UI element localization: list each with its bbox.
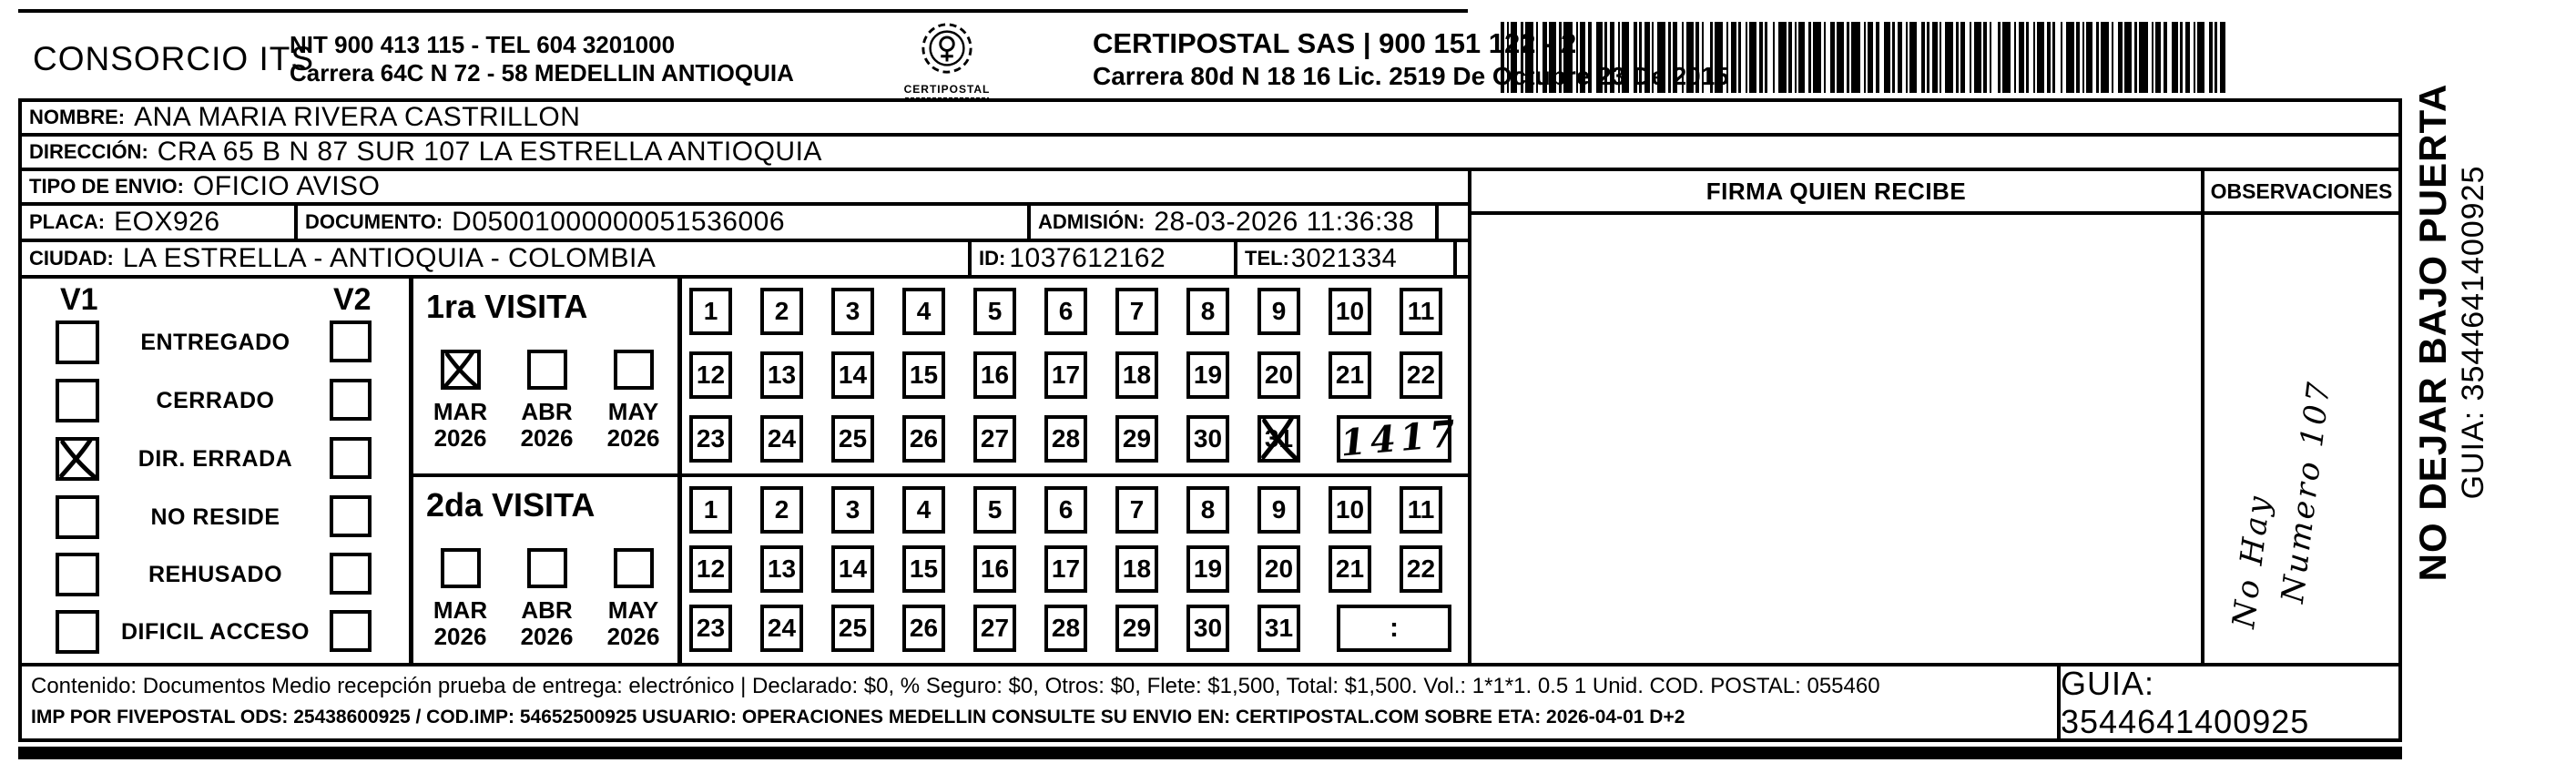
tel-value: 3021334 — [1291, 244, 1397, 274]
month-checkbox — [527, 350, 567, 390]
barcode-bar — [1682, 22, 1684, 93]
day-box: 14 — [831, 351, 874, 399]
barcode-bar — [1970, 22, 1971, 93]
barcode-bar — [1824, 22, 1826, 93]
status-checkbox-v1 — [56, 553, 99, 596]
barcode-bar — [2047, 22, 2051, 93]
month-year: 2026 — [417, 624, 504, 650]
barcode-bar — [1847, 22, 1849, 93]
barcode-bar — [2155, 22, 2161, 93]
status-row: NO RESIDE — [22, 495, 409, 539]
side-note: NO DEJAR BAJO PUERTA GUIA: 3544641400925 — [2411, 68, 2499, 596]
handwritten-x-mark — [1256, 413, 1302, 464]
month-label: MAY — [590, 597, 677, 624]
month-year: 2026 — [504, 624, 590, 650]
month-label: MAY — [590, 399, 677, 425]
side-note-warning: NO DEJAR BAJO PUERTA — [2411, 68, 2455, 596]
bottom-scan-bar — [18, 747, 2402, 759]
barcode-bar — [2026, 22, 2029, 93]
day-box: 19 — [1186, 545, 1229, 593]
month-checkbox — [441, 548, 481, 588]
id-cell: ID: 1037612162 — [968, 239, 1237, 279]
guia-number: GUIA: 3544641400925 — [2061, 665, 2398, 741]
barcode-bar — [1668, 22, 1671, 93]
day-box: 25 — [831, 415, 874, 463]
barcode-bar — [2082, 22, 2084, 93]
barcode-bar — [2019, 22, 2024, 93]
observaciones-header: OBSERVACIONES — [2204, 171, 2398, 215]
barcode-bar — [1927, 22, 1929, 93]
visit2-column-header: V2 — [333, 282, 372, 318]
status-row: REHUSADO — [22, 553, 409, 596]
status-checkbox-v2 — [330, 610, 372, 652]
admision-value: 28-03-2026 11:36:38 — [1154, 207, 1414, 238]
time-value: : — [1390, 613, 1399, 643]
barcode-bar — [1673, 22, 1677, 93]
month-label: MAR — [417, 399, 504, 425]
day-box: 8 — [1186, 288, 1229, 335]
day-box: 9 — [1257, 288, 1300, 335]
month-year: 2026 — [417, 425, 504, 452]
barcode-bar — [2185, 22, 2190, 93]
barcode-bar — [1960, 22, 1965, 93]
day-box: 9 — [1257, 486, 1300, 534]
barcode-bar — [1990, 22, 1991, 93]
day-row: 1213141516171819202122 — [689, 545, 1471, 593]
day-box: 27 — [973, 415, 1016, 463]
day-box: 22 — [1400, 351, 1442, 399]
barcode-bar — [1798, 22, 1805, 93]
day-box: 2 — [760, 288, 803, 335]
status-checkbox-v1 — [56, 610, 99, 654]
admision-cell: ADMISIÓN: 28-03-2026 11:36:38 — [1027, 202, 1439, 242]
status-label: DIR. ERRADA — [108, 437, 322, 481]
day-box: 14 — [831, 545, 874, 593]
status-row: ENTREGADO — [22, 320, 409, 364]
barcode-bar — [1864, 22, 1866, 93]
visit1-column-header: V1 — [60, 282, 98, 318]
barcode-bar — [1788, 22, 1792, 93]
barcode-bar — [2066, 22, 2074, 93]
company-address: Carrera 64C N 72 - 58 MEDELLIN ANTIOQUIA — [290, 59, 794, 87]
status-checkbox-v2 — [330, 379, 372, 421]
visita2-months: MAR2026ABR2026MAY2026 — [417, 548, 677, 650]
footer-content-line: Contenido: Documentos Medio recepción pr… — [31, 674, 1880, 699]
barcode-bar — [1921, 22, 1925, 93]
barcode-bar — [1884, 22, 1890, 93]
nombre-label: NOMBRE: — [22, 106, 125, 129]
barcode-bar — [1644, 22, 1650, 93]
day-box: 27 — [973, 605, 1016, 652]
barcode-bar — [1808, 22, 1811, 93]
tipo-envio-row: TIPO DE ENVIO: OFICIO AVISO — [18, 168, 1471, 206]
day-box: 10 — [1329, 486, 1371, 534]
barcode-bar — [1695, 22, 1699, 93]
company-nit: NIT 900 413 115 - TEL 604 3201000 — [290, 31, 794, 59]
nombre-value: ANA MARIA RIVERA CASTRILLON — [134, 102, 580, 133]
day-box: 5 — [973, 288, 1016, 335]
documento-value: D05001000000051536006 — [452, 207, 785, 238]
barcode-bar — [2209, 22, 2213, 93]
month-cell: MAY2026 — [590, 350, 677, 452]
barcode-bar — [1596, 22, 1603, 93]
barcode-bar — [1501, 22, 1504, 93]
day-box: 23 — [689, 415, 732, 463]
barcode-bar — [1622, 22, 1629, 93]
visita1-day-grid: 1234567891011121314151617181920212223242… — [678, 275, 1471, 477]
side-note-guia: GUIA: 3544641400925 — [2455, 68, 2491, 596]
status-label: CERRADO — [108, 379, 322, 422]
visita1-month-panel: 1ra VISITA MAR2026ABR2026MAY2026 — [410, 275, 681, 477]
direccion-value: CRA 65 B N 87 SUR 107 LA ESTRELLA ANTIOQ… — [158, 137, 822, 168]
barcode-bar — [1932, 22, 1938, 93]
barcode-bar — [1983, 22, 1987, 93]
barcode-bar — [1618, 22, 1620, 93]
month-year: 2026 — [590, 425, 677, 452]
ciudad-cell: CIUDAD: LA ESTRELLA - ANTIOQUIA - COLOMB… — [18, 239, 972, 279]
documento-cell: DOCUMENTO: D05001000000051536006 — [294, 202, 1031, 242]
visita1-title: 1ra VISITA — [426, 288, 587, 326]
barcode-bar — [2037, 22, 2044, 93]
day-box: 30 — [1186, 415, 1229, 463]
barcode-bar — [2215, 22, 2217, 93]
barcode-bar — [2194, 22, 2195, 93]
placa-cell: PLACA: EOX926 — [18, 202, 298, 242]
admision-label: ADMISIÓN: — [1031, 210, 1145, 234]
day-box: 16 — [973, 351, 1016, 399]
day-box: 6 — [1044, 486, 1087, 534]
barcode-bar — [1940, 22, 1941, 93]
status-checkbox-v1 — [56, 320, 99, 364]
status-label: NO RESIDE — [108, 495, 322, 539]
status-checkbox-v1 — [56, 379, 99, 422]
day-box: 11 — [1400, 486, 1442, 534]
status-label: DIFICIL ACCESO — [108, 610, 322, 654]
barcode-bar — [2197, 22, 2204, 93]
barcode-bar — [1521, 22, 1523, 93]
barcode-bar — [1974, 22, 1981, 93]
barcode-bar — [1536, 22, 1538, 93]
barcode-bar — [2076, 22, 2080, 93]
barcode-bar — [1898, 22, 1902, 93]
barcode-bar — [1686, 22, 1694, 93]
barcode-bar — [1580, 22, 1585, 93]
day-box: 11 — [1400, 288, 1442, 335]
barcode-bar — [2164, 22, 2167, 93]
month-checkbox — [614, 548, 654, 588]
day-row: 1213141516171819202122 — [689, 351, 1471, 399]
day-box: 8 — [1186, 486, 1229, 534]
tel-cell: TEL: 3021334 — [1234, 239, 1457, 279]
day-box: 24 — [760, 415, 803, 463]
barcode-bar — [1576, 22, 1578, 93]
day-box: 3 — [831, 288, 874, 335]
month-cell: MAR2026 — [417, 350, 504, 452]
day-box: 30 — [1186, 605, 1229, 652]
direccion-label: DIRECCIÓN: — [22, 140, 148, 164]
barcode-bar — [1634, 22, 1637, 93]
barcode-bar — [2002, 22, 2011, 93]
handwritten-x-mark — [439, 348, 483, 392]
day-box: 7 — [1115, 288, 1158, 335]
day-box: 18 — [1115, 545, 1158, 593]
day-row: 1234567891011 — [689, 486, 1471, 534]
barcode-bar — [1778, 22, 1787, 93]
barcode-bar — [1657, 22, 1665, 93]
status-checkbox-v1 — [56, 437, 99, 481]
barcode-bar — [1604, 22, 1607, 93]
day-box: 21 — [1329, 545, 1371, 593]
barcode-bar — [1749, 22, 1756, 93]
barcode-bar — [1759, 22, 1763, 93]
barcode-bar — [1830, 22, 1835, 93]
barcode-bar — [1543, 22, 1547, 93]
day-box: 20 — [1257, 545, 1300, 593]
barcode-bar — [1710, 22, 1713, 93]
month-cell: ABR2026 — [504, 350, 590, 452]
month-cell: ABR2026 — [504, 548, 590, 650]
placa-value: EOX926 — [114, 207, 219, 238]
month-year: 2026 — [504, 425, 590, 452]
barcode-bar — [2152, 22, 2153, 93]
barcode-bar — [2101, 22, 2109, 93]
barcode-bar — [2112, 22, 2113, 93]
barcode-bar — [1610, 22, 1614, 93]
tipo-envio-value: OFICIO AVISO — [193, 171, 380, 202]
month-cell: MAR2026 — [417, 548, 504, 650]
month-label: ABR — [504, 399, 590, 425]
day-box: 17 — [1044, 545, 1087, 593]
barcode-bar — [1795, 22, 1797, 93]
day-box: 15 — [902, 351, 945, 399]
barcode-bar — [1909, 22, 1917, 93]
day-box: 13 — [760, 545, 803, 593]
ciudad-label: CIUDAD: — [22, 247, 114, 270]
status-checkbox-v2 — [330, 495, 372, 537]
month-checkbox — [527, 548, 567, 588]
day-box: 28 — [1044, 605, 1087, 652]
barcode-bar — [2220, 22, 2225, 93]
barcode-bar — [1998, 22, 2001, 93]
status-label: ENTREGADO — [108, 320, 322, 364]
handwritten-x-mark — [54, 435, 101, 483]
barcode-bar — [2086, 22, 2092, 93]
day-box: 13 — [760, 351, 803, 399]
barcode-bar — [1746, 22, 1747, 93]
scanned-delivery-form: CONSORCIO ITS NIT 900 413 115 - TEL 604 … — [0, 0, 2576, 763]
barcode-bar — [2139, 22, 2148, 93]
day-box: 22 — [1400, 545, 1442, 593]
certipostal-logo-icon — [908, 22, 986, 76]
footer-imp-line: IMP POR FIVEPOSTAL ODS: 25438600925 / CO… — [31, 707, 1685, 728]
month-label: ABR — [504, 597, 590, 624]
id-value: 1037612162 — [1009, 243, 1166, 274]
day-row: 232425262728293031: — [689, 605, 1451, 652]
tel-label: TEL: — [1237, 247, 1289, 270]
day-box: 1 — [689, 288, 732, 335]
month-label: MAR — [417, 597, 504, 624]
barcode-bar — [1702, 22, 1704, 93]
day-box: 25 — [831, 605, 874, 652]
visita2-month-panel: 2da VISITA MAR2026ABR2026MAY2026 — [410, 473, 681, 666]
month-year: 2026 — [590, 624, 677, 650]
month-checkbox — [441, 350, 481, 390]
barcode-bar — [1507, 22, 1509, 93]
barcode-bar — [1639, 22, 1642, 93]
barcode — [1501, 22, 2235, 93]
barcode-bar — [2096, 22, 2099, 93]
company-name: CONSORCIO ITS — [33, 40, 314, 78]
day-box: 26 — [902, 605, 945, 652]
barcode-bar — [2180, 22, 2183, 93]
firma-header: FIRMA QUIEN RECIBE — [1471, 171, 2201, 215]
day-box: 19 — [1186, 351, 1229, 399]
day-box: 31 — [1257, 415, 1300, 463]
time-box: : — [1337, 605, 1451, 652]
day-box: 20 — [1257, 351, 1300, 399]
guia-box: GUIA: 3544641400925 — [2057, 663, 2402, 742]
visita2-title: 2da VISITA — [426, 486, 595, 524]
barcode-bar — [1945, 22, 1953, 93]
day-box: 29 — [1115, 415, 1158, 463]
placa-row-filler — [1435, 202, 1471, 242]
handwritten-time-value: 1417 — [1339, 413, 1461, 463]
barcode-bar — [1851, 22, 1860, 93]
day-box: 4 — [902, 288, 945, 335]
day-box: 3 — [831, 486, 874, 534]
barcode-bar — [2134, 22, 2137, 93]
barcode-bar — [2118, 22, 2123, 93]
company-info: NIT 900 413 115 - TEL 604 3201000 Carrer… — [290, 31, 794, 87]
day-box: 29 — [1115, 605, 1158, 652]
day-box: 15 — [902, 545, 945, 593]
status-panel: V1 V2 ENTREGADOCERRADODIR. ERRADANO RESI… — [18, 275, 412, 666]
placa-label: PLACA: — [22, 210, 105, 234]
barcode-bar — [1906, 22, 1908, 93]
day-box: 28 — [1044, 415, 1087, 463]
day-box: 2 — [760, 486, 803, 534]
day-box: 23 — [689, 605, 732, 652]
barcode-bar — [1652, 22, 1654, 93]
barcode-bar — [1731, 22, 1736, 93]
day-row: 2324252627282930311417 — [689, 415, 1451, 463]
barcode-bar — [1563, 22, 1573, 93]
day-box: 31 — [1257, 605, 1300, 652]
certipostal-logo: CERTIPOSTAL — [892, 22, 1002, 102]
month-checkbox — [614, 350, 654, 390]
barcode-bar — [1549, 22, 1556, 93]
documento-label: DOCUMENTO: — [298, 210, 443, 234]
day-box: 16 — [973, 545, 1016, 593]
day-box: 21 — [1329, 351, 1371, 399]
day-box: 18 — [1115, 351, 1158, 399]
barcode-bar — [2124, 22, 2132, 93]
barcode-bar — [1813, 22, 1821, 93]
barcode-bar — [2172, 22, 2178, 93]
status-checkbox-v2 — [330, 320, 372, 362]
day-box: 17 — [1044, 351, 1087, 399]
status-row: DIR. ERRADA — [22, 437, 409, 481]
status-row: DIFICIL ACCESO — [22, 610, 409, 654]
barcode-bar — [1892, 22, 1895, 93]
status-row: CERRADO — [22, 379, 409, 422]
barcode-bar — [2033, 22, 2035, 93]
barcode-bar — [2052, 22, 2055, 93]
barcode-bar — [1837, 22, 1844, 93]
barcode-bar — [1715, 22, 1723, 93]
day-box: 7 — [1115, 486, 1158, 534]
tipo-envio-label: TIPO DE ENVIO: — [22, 175, 184, 198]
barcode-bar — [1525, 22, 1533, 93]
day-box: 5 — [973, 486, 1016, 534]
day-box: 12 — [689, 545, 732, 593]
time-box: 1417 — [1337, 415, 1451, 463]
barcode-bar — [1876, 22, 1879, 93]
barcode-bar — [1773, 22, 1775, 93]
barcode-bar — [2061, 22, 2062, 93]
ciudad-value: LA ESTRELLA - ANTIOQUIA - COLOMBIA — [123, 243, 657, 274]
barcode-bar — [1868, 22, 1873, 93]
barcode-bar — [1956, 22, 1959, 93]
logo-caption: CERTIPOSTAL — [892, 83, 1002, 96]
barcode-bar — [1726, 22, 1728, 93]
status-checkbox-v2 — [330, 437, 372, 479]
day-box: 1 — [689, 486, 732, 534]
status-checkbox-v2 — [330, 553, 372, 595]
day-box: 24 — [760, 605, 803, 652]
day-box: 10 — [1329, 288, 1371, 335]
barcode-bar — [1765, 22, 1767, 93]
direccion-row: DIRECCIÓN: CRA 65 B N 87 SUR 107 LA ESTR… — [18, 133, 2402, 171]
firma-column: FIRMA QUIEN RECIBE — [1468, 168, 2204, 666]
barcode-bar — [1511, 22, 1517, 93]
visita1-months: MAR2026ABR2026MAY2026 — [417, 350, 677, 452]
day-box: 26 — [902, 415, 945, 463]
barcode-bar — [1588, 22, 1592, 93]
day-box: 12 — [689, 351, 732, 399]
visita2-day-grid: 1234567891011121314151617181920212223242… — [678, 473, 1471, 666]
day-box: 4 — [902, 486, 945, 534]
day-box: 6 — [1044, 288, 1087, 335]
status-label: REHUSADO — [108, 553, 322, 596]
scan-edge-line — [18, 9, 1468, 13]
barcode-bar — [1559, 22, 1562, 93]
month-cell: MAY2026 — [590, 548, 677, 650]
status-checkbox-v1 — [56, 495, 99, 539]
barcode-bar — [1738, 22, 1741, 93]
nombre-row: NOMBRE: ANA MARIA RIVERA CASTRILLON — [18, 98, 2402, 137]
barcode-bar — [2014, 22, 2016, 93]
day-row: 1234567891011 — [689, 288, 1471, 335]
footer-detail-box: Contenido: Documentos Medio recepción pr… — [18, 663, 2061, 742]
id-label: ID: — [972, 247, 1005, 270]
